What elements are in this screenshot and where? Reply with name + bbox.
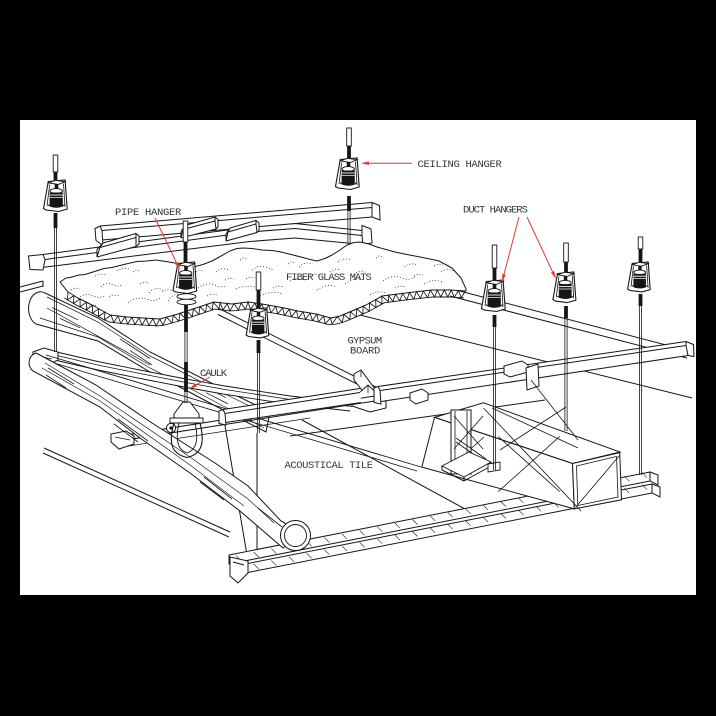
svg-text:CAULK: CAULK bbox=[200, 368, 228, 380]
svg-text:FIBER GLASS MATS: FIBER GLASS MATS bbox=[286, 272, 372, 284]
svg-text:PIPE HANGER: PIPE HANGER bbox=[115, 207, 182, 219]
svg-text:CEILING HANGER: CEILING HANGER bbox=[418, 159, 503, 171]
svg-text:BOARD: BOARD bbox=[350, 346, 380, 358]
svg-text:ACOUSTICAL TILE: ACOUSTICAL TILE bbox=[285, 460, 373, 472]
svg-text:DUCT HANGERS: DUCT HANGERS bbox=[463, 205, 528, 217]
